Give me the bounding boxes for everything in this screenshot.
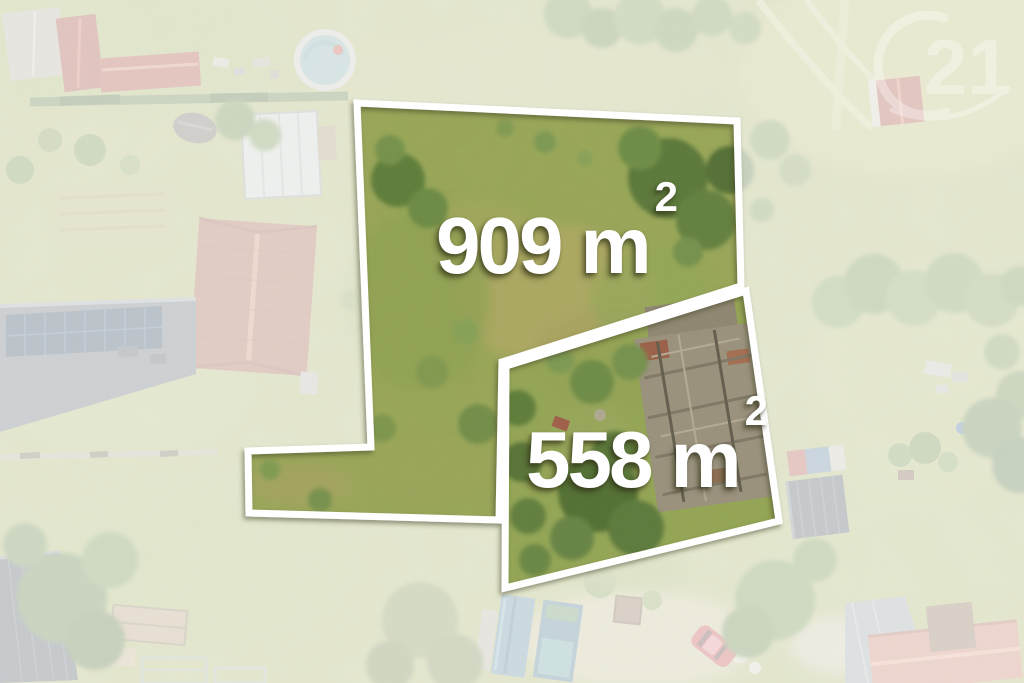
plot-558-area-label: 558m2 bbox=[526, 420, 768, 500]
aerial-photo-canvas: 21 bbox=[0, 0, 1024, 683]
area-value: 558 bbox=[526, 415, 650, 504]
plot-909-area-label: 909m2 bbox=[436, 206, 678, 286]
area-exponent: 2 bbox=[655, 173, 678, 220]
watermark-text: 21 bbox=[924, 23, 1011, 111]
area-unit: m bbox=[670, 415, 738, 504]
area-unit: m bbox=[580, 201, 648, 290]
faded-overlay bbox=[0, 0, 1024, 683]
aerial-photo: 21 909m2 558m2 bbox=[0, 0, 1024, 683]
area-exponent: 2 bbox=[745, 387, 768, 434]
area-value: 909 bbox=[436, 201, 560, 290]
